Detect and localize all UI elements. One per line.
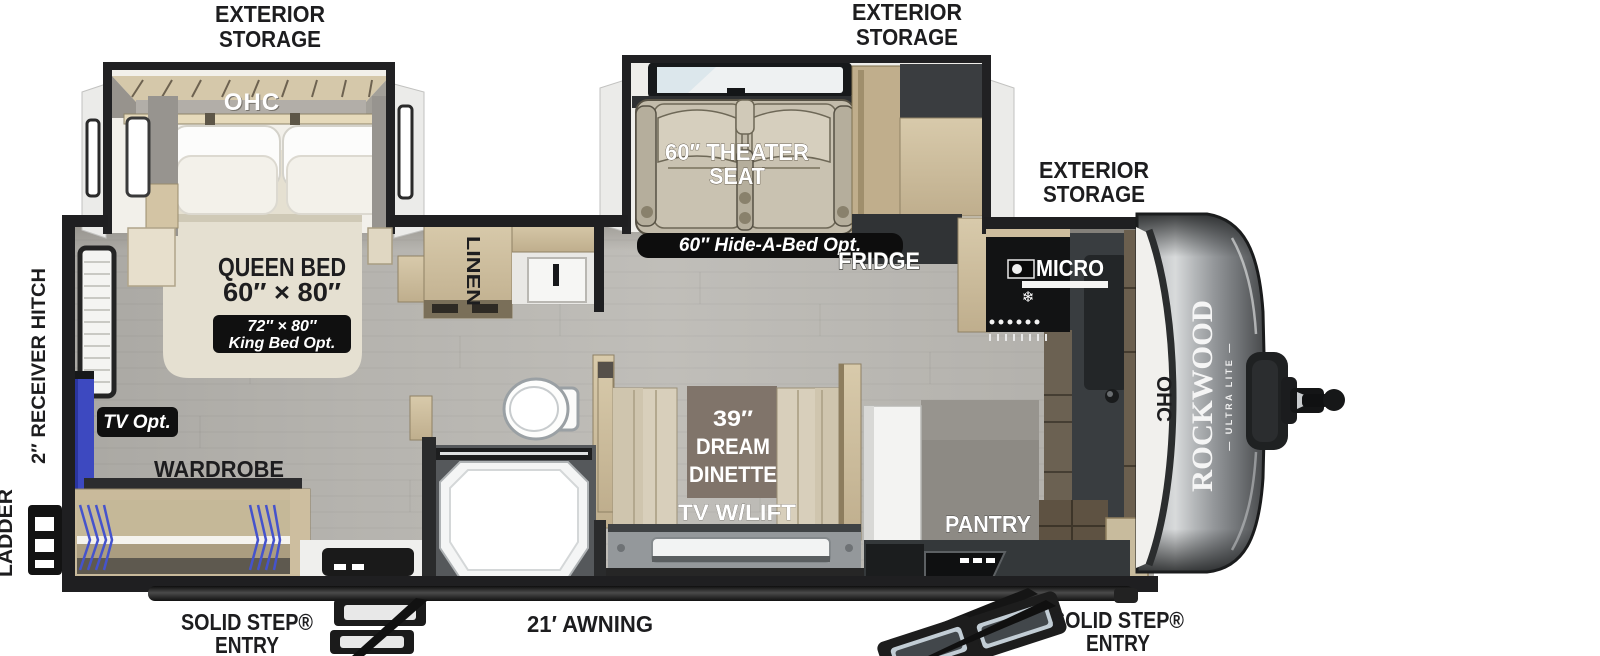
svg-text:DINETTE: DINETTE	[689, 462, 777, 487]
svg-text:— ULTRA LITE —: — ULTRA LITE —	[1224, 341, 1234, 451]
svg-text:OHC: OHC	[224, 89, 280, 116]
svg-text:STORAGE: STORAGE	[856, 24, 958, 50]
svg-text:STORAGE: STORAGE	[1043, 181, 1145, 207]
svg-text:21′ AWNING: 21′ AWNING	[527, 611, 653, 637]
svg-text:ENTRY: ENTRY	[215, 632, 279, 656]
svg-text:OHC: OHC	[1152, 376, 1175, 422]
svg-text:SEAT: SEAT	[709, 163, 765, 189]
svg-text:60″ THEATER: 60″ THEATER	[665, 139, 809, 165]
svg-text:TV Opt.: TV Opt.	[103, 412, 171, 433]
svg-text:ENTRY: ENTRY	[1086, 630, 1150, 656]
svg-text:ROCKWOOD: ROCKWOOD	[1186, 300, 1219, 492]
svg-text:39″: 39″	[713, 406, 754, 431]
svg-text:EXTERIOR: EXTERIOR	[215, 1, 325, 27]
svg-text:72″ × 80″: 72″ × 80″	[247, 318, 317, 335]
svg-text:FRIDGE: FRIDGE	[838, 248, 920, 275]
svg-text:2″ RECEIVER HITCH: 2″ RECEIVER HITCH	[28, 268, 50, 464]
svg-text:EXTERIOR: EXTERIOR	[1039, 157, 1149, 183]
svg-text:EXTERIOR: EXTERIOR	[852, 0, 962, 25]
svg-text:WARDROBE: WARDROBE	[154, 456, 284, 482]
svg-text:LINEN: LINEN	[463, 236, 483, 306]
svg-text:❄: ❄	[1022, 289, 1035, 306]
svg-text:60″ Hide-A-Bed Opt.: 60″ Hide-A-Bed Opt.	[679, 235, 861, 256]
svg-text:LADDER: LADDER	[0, 488, 17, 577]
svg-text:60″ × 80″: 60″ × 80″	[223, 277, 341, 307]
svg-text:TV W/LIFT: TV W/LIFT	[678, 500, 797, 525]
svg-text:PANTRY: PANTRY	[945, 511, 1031, 537]
svg-text:STORAGE: STORAGE	[219, 26, 321, 52]
svg-text:MICRO: MICRO	[1036, 255, 1104, 281]
svg-text:DREAM: DREAM	[696, 434, 770, 459]
svg-text:King Bed Opt.: King Bed Opt.	[229, 335, 336, 352]
